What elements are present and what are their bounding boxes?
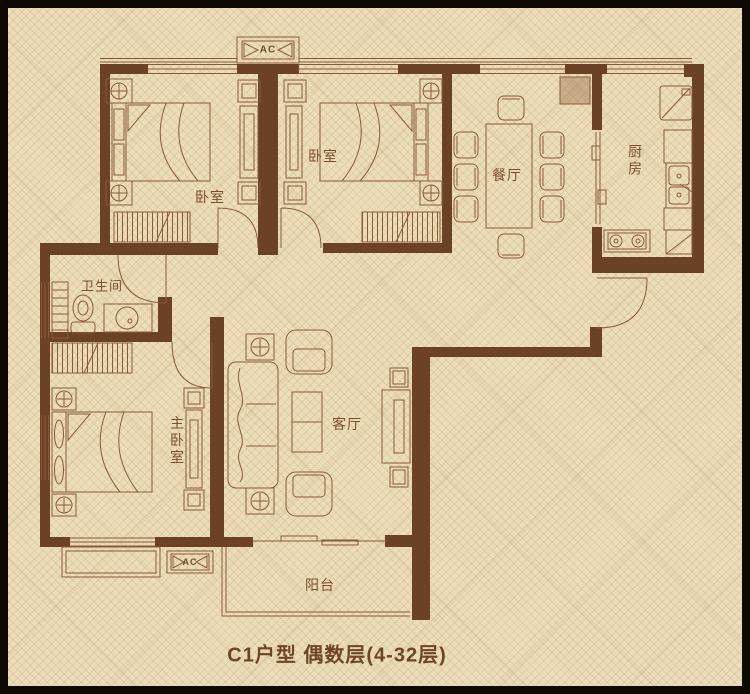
- windows: [42, 65, 685, 547]
- room-label-bedroom-2: 卧室: [308, 146, 338, 166]
- kitchen-fixtures: [604, 86, 692, 254]
- bedroom1-furniture: [106, 79, 260, 242]
- balcony-outline: [62, 547, 410, 616]
- floorplan-drawing: [0, 0, 750, 694]
- living-room-furniture: [228, 330, 410, 516]
- room-label-bedroom-1: 卧室: [195, 187, 225, 207]
- room-label-kitchen: 厨房: [625, 144, 645, 178]
- plan-caption: C1户型 偶数层(4-32层): [227, 639, 446, 668]
- walls: [40, 64, 704, 620]
- room-label-master-bedroom: 主卧室: [167, 416, 187, 467]
- exterior-trim: [100, 59, 692, 63]
- floorplan-page: 卧室 卧室 餐厅 厨房 卫生间 主卧室 客厅 阳台 AC AC C1户型 偶数层…: [0, 0, 750, 694]
- room-label-bathroom: 卫生间: [81, 276, 123, 295]
- kitchen-duct: [560, 77, 590, 104]
- room-label-living: 客厅: [332, 414, 362, 434]
- room-label-dining: 餐厅: [492, 165, 522, 185]
- ac-label-top: AC: [260, 45, 276, 56]
- room-label-balcony: 阳台: [305, 575, 335, 595]
- ac-label-bottom: AC: [183, 557, 198, 567]
